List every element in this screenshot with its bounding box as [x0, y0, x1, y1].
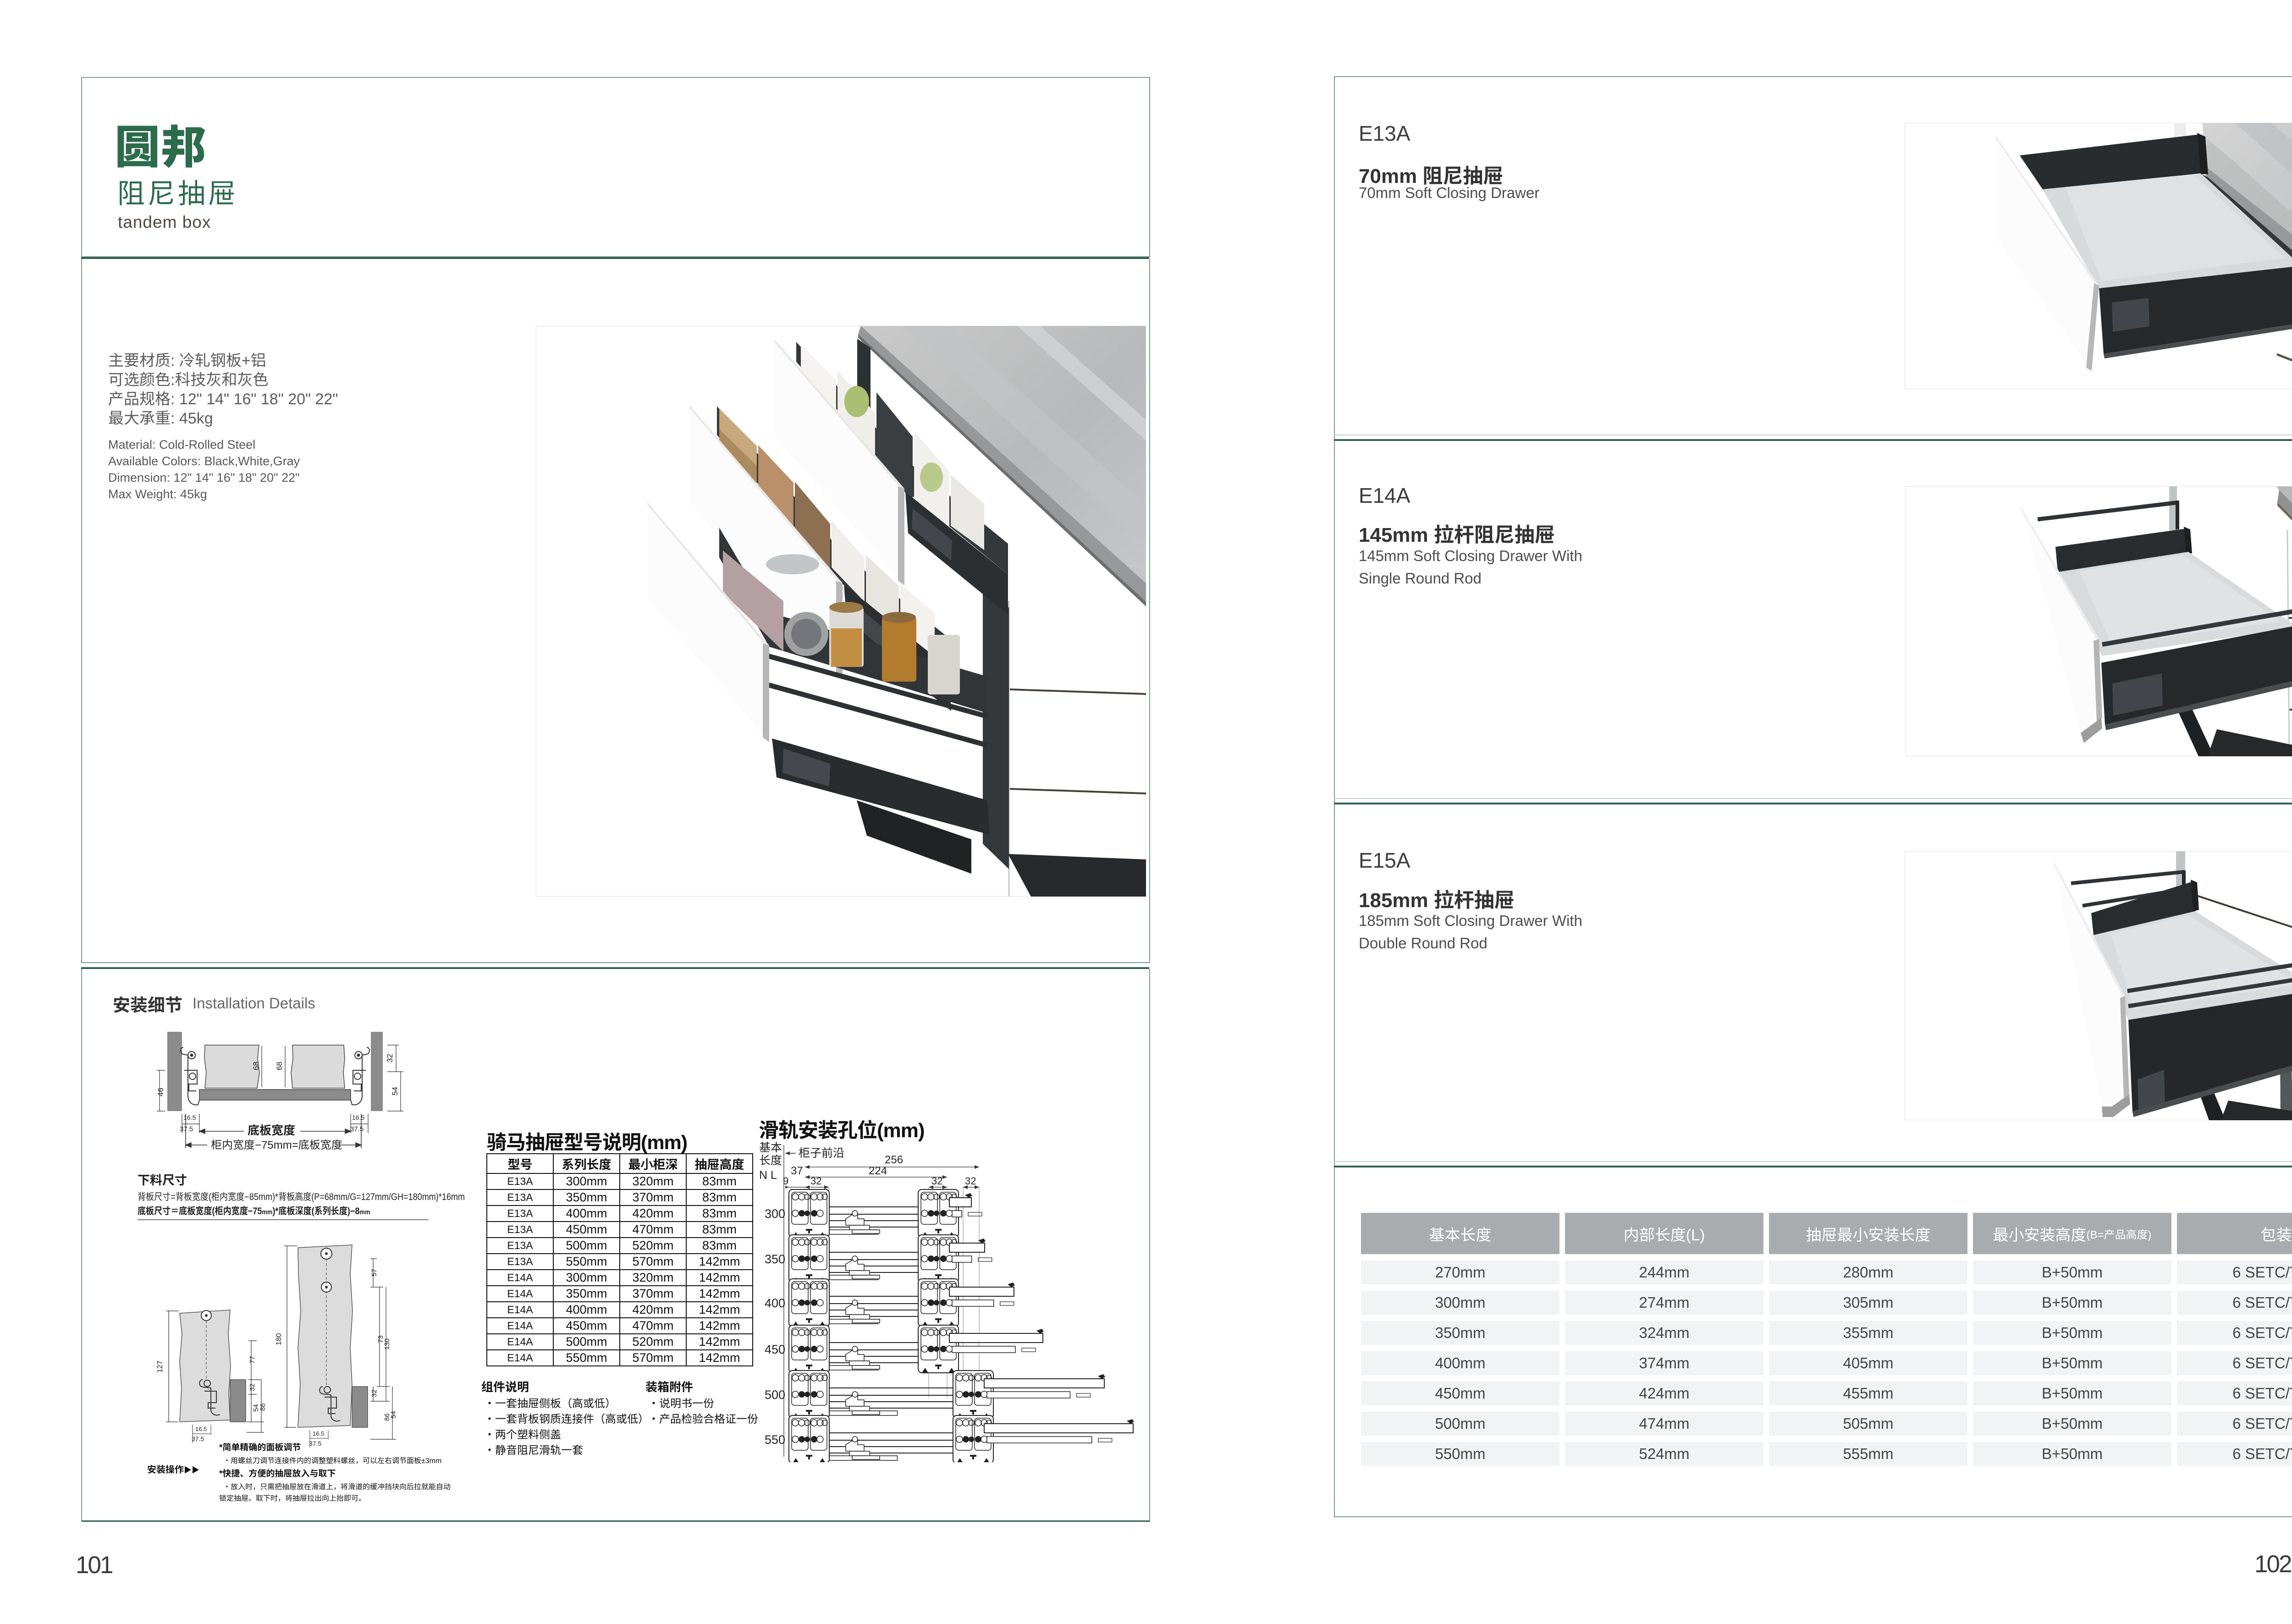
svg-text:16.5: 16.5 — [313, 1430, 324, 1437]
svg-text:底板宽度: 底板宽度 — [248, 1123, 295, 1137]
svg-text:54: 54 — [391, 1087, 399, 1096]
svg-text:57: 57 — [370, 1269, 378, 1277]
svg-text:柜内宽度−75mm=底板宽度: 柜内宽度−75mm=底板宽度 — [211, 1139, 342, 1151]
svg-text:16.5: 16.5 — [195, 1426, 207, 1432]
svg-text:柜子前沿: 柜子前沿 — [799, 1147, 844, 1160]
svg-text:77: 77 — [248, 1356, 256, 1364]
svg-text:130: 130 — [383, 1338, 391, 1350]
svg-text:16.5: 16.5 — [183, 1114, 196, 1121]
svg-text:32: 32 — [370, 1389, 378, 1397]
svg-text:68: 68 — [252, 1062, 260, 1070]
svg-text:46: 46 — [156, 1088, 165, 1096]
svg-text:32: 32 — [248, 1383, 256, 1391]
svg-text:32: 32 — [386, 1054, 394, 1062]
svg-text:N L: N L — [759, 1169, 777, 1182]
svg-text:450: 450 — [765, 1343, 785, 1356]
svg-text:37.5: 37.5 — [192, 1435, 204, 1442]
svg-text:37.5: 37.5 — [180, 1125, 193, 1133]
svg-text:350: 350 — [765, 1252, 785, 1266]
svg-text:37: 37 — [791, 1165, 803, 1177]
svg-text:256: 256 — [885, 1154, 903, 1166]
svg-text:9: 9 — [783, 1175, 788, 1187]
svg-text:500: 500 — [765, 1388, 785, 1402]
svg-text:550: 550 — [765, 1433, 785, 1447]
svg-text:300: 300 — [765, 1207, 785, 1221]
svg-text:86: 86 — [259, 1403, 267, 1411]
svg-text:224: 224 — [869, 1165, 887, 1177]
svg-text:基本: 基本 — [759, 1141, 782, 1154]
svg-text:127: 127 — [156, 1360, 164, 1373]
svg-text:16.5: 16.5 — [352, 1114, 364, 1121]
svg-text:68: 68 — [275, 1062, 284, 1070]
svg-text:37.5: 37.5 — [309, 1440, 321, 1447]
svg-text:180: 180 — [275, 1333, 283, 1345]
svg-text:32: 32 — [965, 1175, 976, 1187]
svg-text:32: 32 — [931, 1175, 942, 1187]
svg-text:54: 54 — [390, 1411, 397, 1419]
svg-text:32: 32 — [810, 1175, 821, 1187]
svg-text:400: 400 — [765, 1296, 785, 1310]
svg-text:37.5: 37.5 — [350, 1125, 364, 1133]
svg-text:长度: 长度 — [759, 1154, 782, 1167]
